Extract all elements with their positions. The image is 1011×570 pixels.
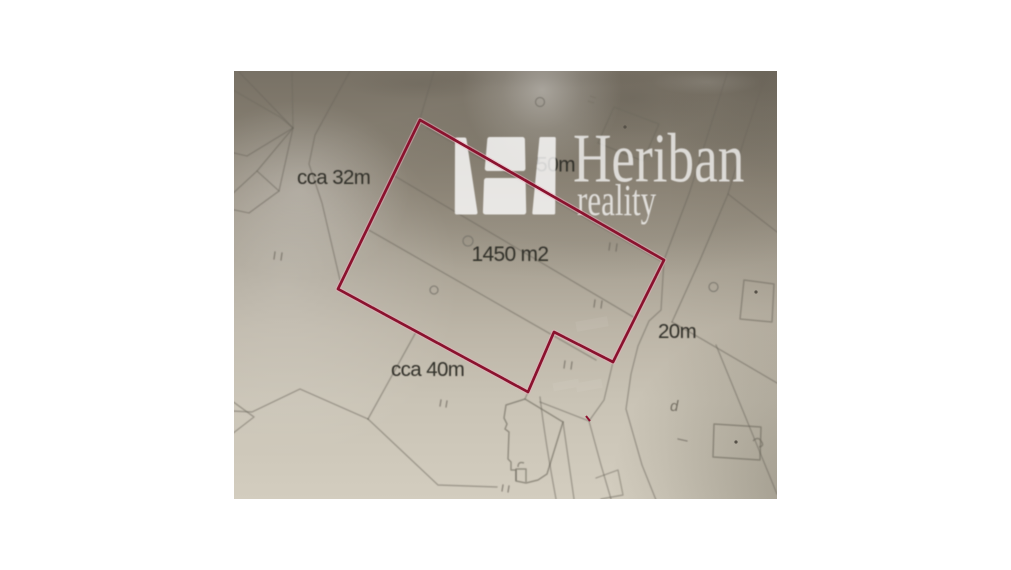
svg-text:20m: 20m [658,320,696,343]
svg-text:cca 40m: cca 40m [391,358,464,381]
svg-text:1450 m2: 1450 m2 [472,243,549,266]
svg-text:d: d [670,398,679,415]
svg-text:cca 32m: cca 32m [297,166,370,189]
